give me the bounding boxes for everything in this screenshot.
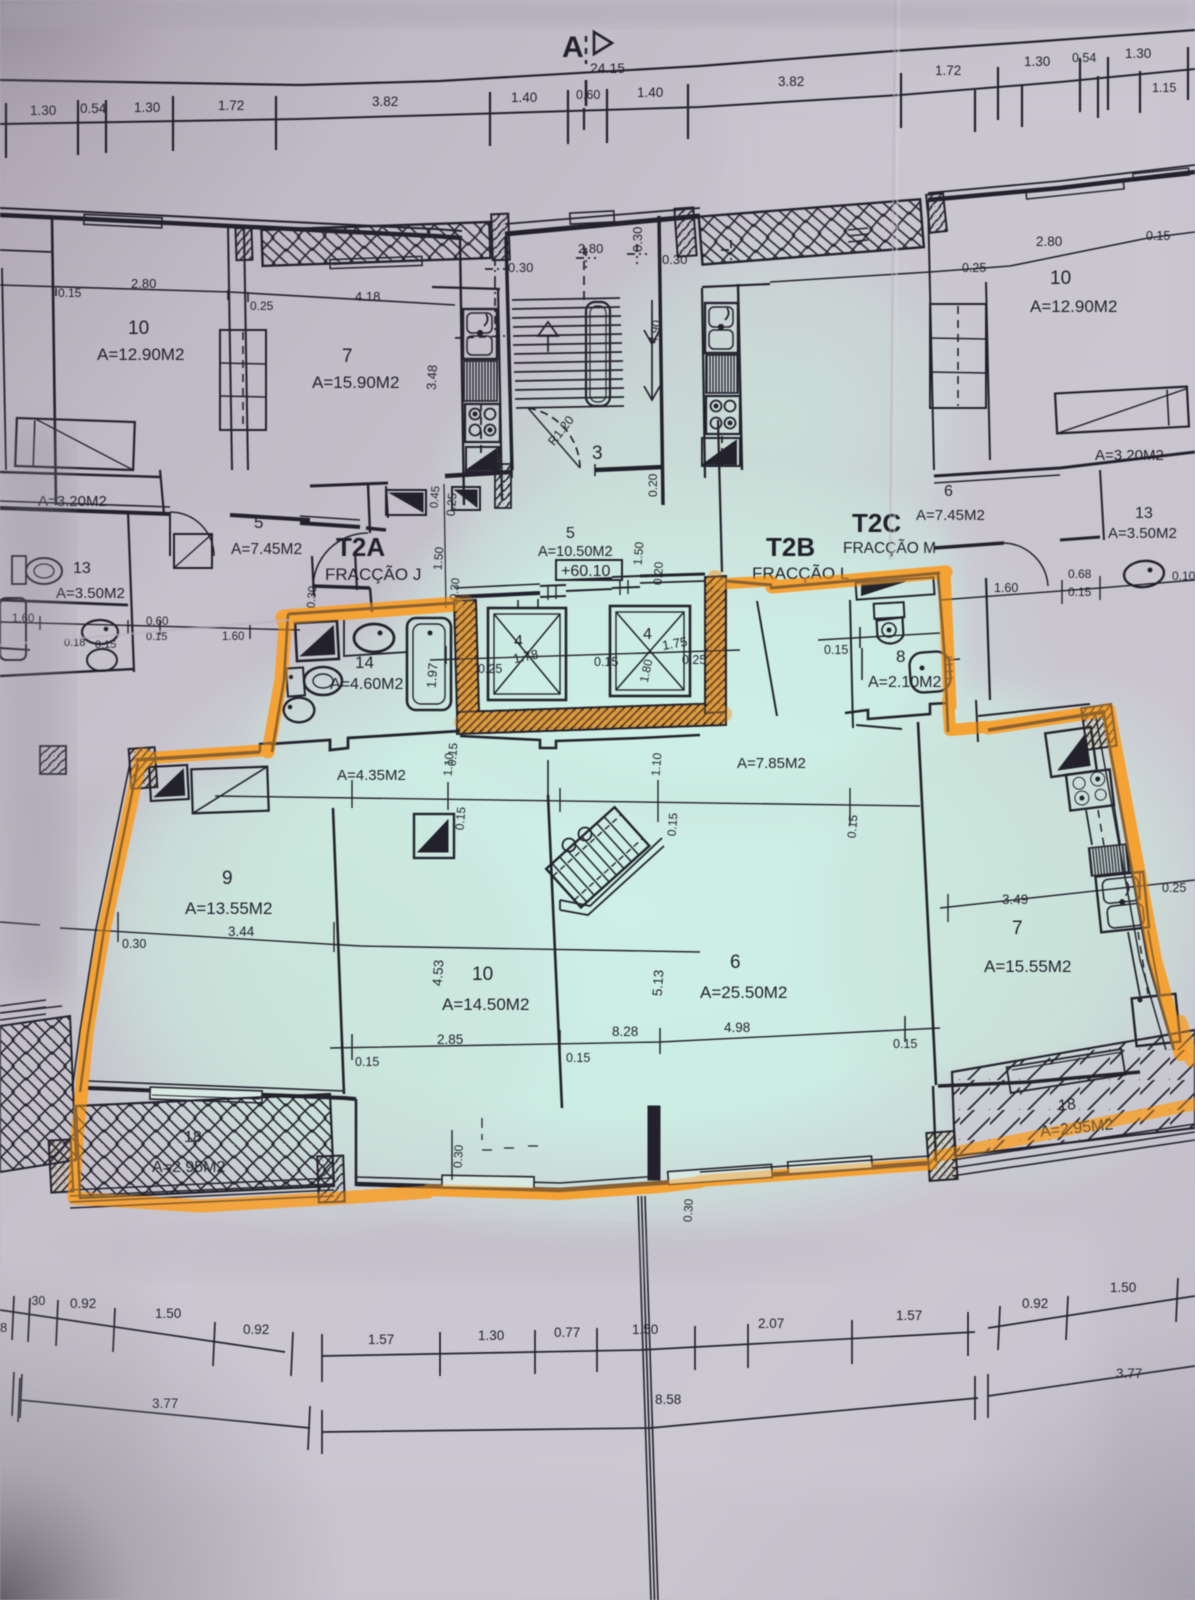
svg-text:3.49: 3.49 [1002,892,1028,907]
svg-text:6: 6 [944,483,953,500]
svg-text:8.58: 8.58 [655,1392,681,1407]
svg-text:24.15: 24.15 [590,60,625,76]
svg-text:0.68: 0.68 [1068,567,1092,581]
svg-text:2.80: 2.80 [578,241,603,256]
svg-text:4: 4 [514,633,523,650]
svg-text:A=7.45M2: A=7.45M2 [231,541,302,558]
svg-text:0.60: 0.60 [146,616,168,628]
svg-text:7: 7 [342,346,353,367]
svg-text:3.44: 3.44 [228,924,255,939]
svg-text:0.45: 0.45 [428,485,442,508]
svg-text:13: 13 [73,560,91,577]
svg-text:0.15: 0.15 [1146,229,1170,243]
svg-text:A=13.55M2: A=13.55M2 [185,899,272,918]
svg-text:1.50: 1.50 [632,1322,658,1337]
svg-text:6: 6 [730,952,741,973]
svg-text:10: 10 [472,964,493,985]
svg-text:5.13: 5.13 [650,969,667,996]
svg-text:0.10: 0.10 [1172,569,1195,583]
svg-text:1.60: 1.60 [994,581,1018,595]
svg-text:0.30: 0.30 [508,260,533,275]
svg-text:0.30: 0.30 [122,937,146,951]
svg-text:0.15: 0.15 [893,1037,917,1051]
svg-text:0.15: 0.15 [664,812,680,837]
svg-text:0.15: 0.15 [95,639,116,651]
svg-text:1.97: 1.97 [423,662,440,689]
svg-text:0.30: 0.30 [662,252,687,267]
svg-text:3.82: 3.82 [778,74,804,89]
svg-text:A=15.55M2: A=15.55M2 [984,957,1071,976]
svg-text:A=4.60M2: A=4.60M2 [330,676,403,693]
svg-text:4.98: 4.98 [724,1020,750,1035]
svg-text:5: 5 [566,525,575,542]
svg-text:0.54: 0.54 [1072,51,1096,65]
svg-text:A=14.50M2: A=14.50M2 [442,995,529,1014]
svg-text:4: 4 [643,626,652,643]
svg-text:2.80: 2.80 [1036,234,1062,249]
svg-text:T2A: T2A [336,532,385,562]
svg-text:1.72: 1.72 [935,63,961,78]
svg-text:1.40: 1.40 [511,90,537,105]
svg-text:0.20: 0.20 [651,561,666,585]
svg-text:A=12.90M2: A=12.90M2 [1030,297,1117,316]
svg-text:A=3.20M2: A=3.20M2 [1095,447,1164,464]
svg-text:2.85: 2.85 [437,1032,463,1047]
svg-text:A=3.50M2: A=3.50M2 [1108,525,1177,542]
svg-text:0.15: 0.15 [594,655,618,669]
svg-text:A=25.50M2: A=25.50M2 [700,983,787,1002]
svg-text:5: 5 [254,513,263,532]
svg-text:0.30: 0.30 [630,227,645,252]
svg-text:8.28: 8.28 [612,1024,638,1039]
svg-text:1.60: 1.60 [222,631,244,643]
svg-text:0.15: 0.15 [566,1051,590,1065]
svg-text:A: A [562,31,584,64]
svg-text:1.50: 1.50 [430,546,446,571]
svg-text:0.30: 0.30 [305,585,319,608]
svg-text:0.25: 0.25 [1162,881,1186,895]
svg-text:1.30: 1.30 [1125,46,1151,61]
svg-text:FRACÇÃO J: FRACÇÃO J [325,565,421,584]
svg-text:A=12.90M2: A=12.90M2 [97,345,184,364]
svg-text:A=15.90M2: A=15.90M2 [312,373,399,392]
svg-text:1.15: 1.15 [1152,81,1176,95]
svg-text:9: 9 [222,868,233,889]
svg-text:7: 7 [1012,918,1023,939]
svg-text:T2B: T2B [766,532,815,562]
svg-text:A=10.50M2: A=10.50M2 [538,544,613,560]
svg-text:A=7.45M2: A=7.45M2 [916,507,985,524]
svg-text:13: 13 [1135,505,1153,522]
svg-text:0.25: 0.25 [478,662,502,676]
svg-text:1.10: 1.10 [648,752,664,777]
svg-text:0.20: 0.20 [646,473,660,497]
svg-text:A=7.85M2: A=7.85M2 [737,755,806,772]
svg-text:14: 14 [355,653,374,672]
svg-text:0.15: 0.15 [1068,585,1092,599]
svg-text:A=4.35M2: A=4.35M2 [337,767,406,784]
svg-text:0.25: 0.25 [962,261,986,275]
svg-text:1.50: 1.50 [630,541,646,566]
svg-text:3: 3 [592,443,603,464]
svg-text:1.10: 1.10 [440,752,456,777]
svg-text:0.30: 0.30 [681,1198,696,1222]
svg-text:0.15: 0.15 [844,814,860,839]
svg-text:3.48: 3.48 [424,364,440,390]
svg-text:4.53: 4.53 [430,959,447,986]
svg-text:0.25: 0.25 [682,653,706,667]
svg-text:0.60: 0.60 [576,88,600,102]
svg-text:1.40: 1.40 [637,85,663,100]
svg-text:0.15: 0.15 [824,643,848,657]
svg-text:8: 8 [896,647,905,666]
svg-text:1.30: 1.30 [1024,54,1050,69]
svg-text:10: 10 [1050,268,1071,289]
svg-text:A=2.10M2: A=2.10M2 [868,674,941,691]
